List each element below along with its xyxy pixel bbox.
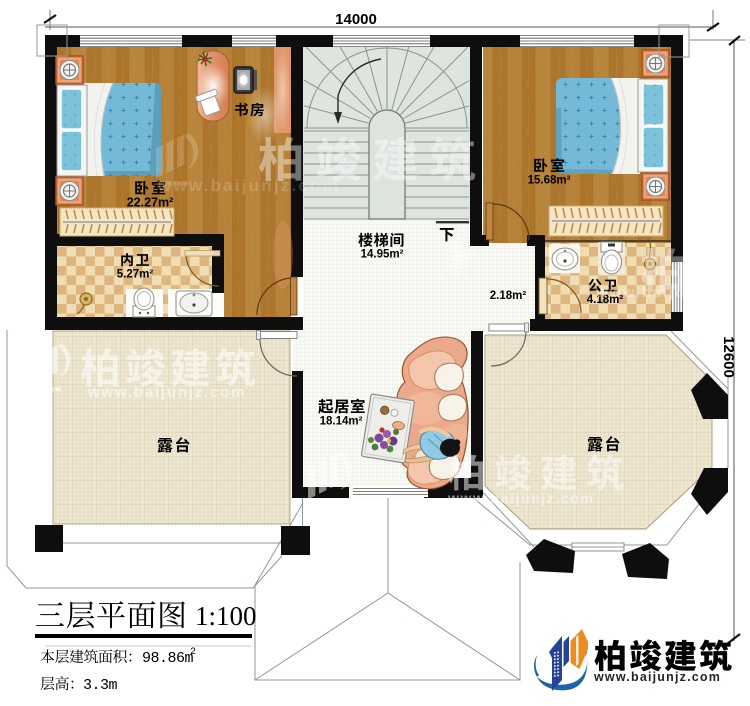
svg-text:www.baijunjz.com: www.baijunjz.com	[157, 176, 340, 195]
svg-text:12600: 12600	[720, 336, 737, 378]
svg-text:www.baijunjz.com: www.baijunjz.com	[593, 670, 721, 684]
svg-text:22.27m²: 22.27m²	[127, 196, 174, 210]
svg-text:2.18m²: 2.18m²	[490, 290, 527, 302]
svg-text:15.68m²: 15.68m²	[528, 175, 571, 187]
svg-text:3.3m: 3.3m	[83, 677, 118, 694]
svg-text:www.baijunjz.com: www.baijunjz.com	[595, 284, 750, 301]
svg-text:98.86m: 98.86m	[142, 650, 194, 667]
svg-text:www.baijunjz.com: www.baijunjz.com	[447, 490, 594, 506]
svg-text:14.95m²: 14.95m²	[361, 249, 404, 261]
svg-text:14000: 14000	[335, 11, 377, 28]
svg-text:1:100: 1:100	[195, 601, 257, 631]
svg-text:5.27m²: 5.27m²	[117, 269, 154, 281]
svg-text:www.baijunjz.com: www.baijunjz.com	[87, 384, 246, 401]
svg-text:2: 2	[190, 647, 196, 658]
svg-text:18.14m²: 18.14m²	[320, 416, 363, 428]
